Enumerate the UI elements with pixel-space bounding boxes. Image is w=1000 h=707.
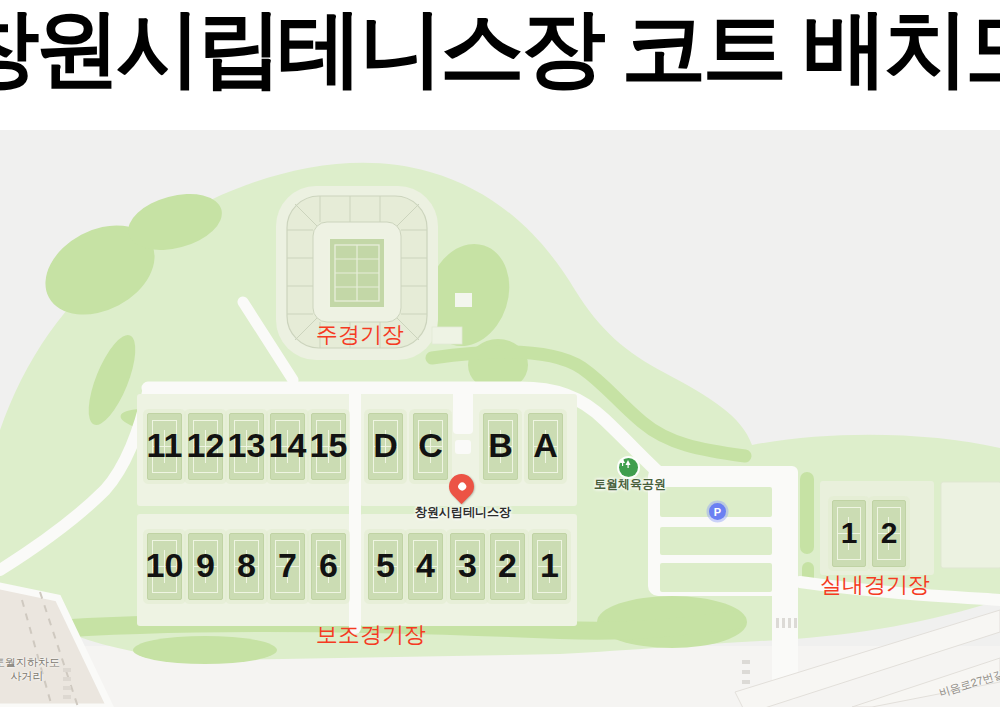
court-3: 3 xyxy=(450,533,485,600)
tree-glyph xyxy=(619,458,632,469)
court-7: 7 xyxy=(270,533,305,600)
court-11: 11 xyxy=(147,413,182,480)
court-layout-map: 11 12 13 14 15 D C B A 10 xyxy=(0,130,1000,707)
court-C: C xyxy=(413,413,448,480)
court-13: 13 xyxy=(229,413,264,480)
title-bar: 창원시립테니스장 코트 배치도 xyxy=(0,0,1000,130)
court-12: 12 xyxy=(188,413,223,480)
page-title: 창원시립테니스장 코트 배치도 xyxy=(0,0,1000,95)
court-15: 15 xyxy=(311,413,346,480)
main-stadium-label: 주경기장 xyxy=(305,320,415,350)
court-label: 7 xyxy=(278,545,297,584)
court-label: A xyxy=(533,425,558,464)
court-1: 1 xyxy=(532,533,567,600)
court-label: 5 xyxy=(376,545,395,584)
indoor-court-1: 1 xyxy=(832,500,866,567)
court-label: C xyxy=(418,425,443,464)
court-label: 10 xyxy=(146,545,184,584)
court-label: 1 xyxy=(540,545,559,584)
court-B: B xyxy=(483,413,518,480)
indoor-court-2: 2 xyxy=(872,500,906,567)
court-A: A xyxy=(528,413,563,480)
court-label: 11 xyxy=(147,425,183,464)
court-8: 8 xyxy=(229,533,264,600)
court-label: 13 xyxy=(228,425,266,464)
pin-label: 창원시립테니스장 xyxy=(413,504,513,521)
court-label: 6 xyxy=(319,545,338,584)
court-label: B xyxy=(488,425,513,464)
court-D: D xyxy=(368,413,403,480)
court-label: 12 xyxy=(187,425,225,464)
court-14: 14 xyxy=(270,413,305,480)
intersection-label: 토월지하차도 사거리 xyxy=(0,656,72,684)
court-6: 6 xyxy=(311,533,346,600)
court-label: 15 xyxy=(310,425,348,464)
court-label: 1 xyxy=(841,515,858,549)
court-2: 2 xyxy=(490,533,525,600)
parking-icon: P xyxy=(709,503,726,520)
indoor-stadium-label: 실내경기장 xyxy=(820,570,926,600)
intersection-label-line2: 사거리 xyxy=(11,670,44,682)
aux-stadium-label: 보조경기장 xyxy=(308,620,434,650)
court-label: 4 xyxy=(416,545,435,584)
court-4: 4 xyxy=(408,533,443,600)
court-label: 8 xyxy=(237,545,256,584)
page: 창원시립테니스장 코트 배치도 xyxy=(0,0,1000,707)
intersection-label-line1: 토월지하차도 xyxy=(0,656,60,668)
court-label: 2 xyxy=(881,515,898,549)
court-label: 14 xyxy=(269,425,307,464)
park-icon xyxy=(619,458,638,477)
park-poi-label: 토월체육공원 xyxy=(592,476,668,493)
court-label: 2 xyxy=(498,545,517,584)
court-5: 5 xyxy=(368,533,403,600)
court-label: 9 xyxy=(196,545,215,584)
court-9: 9 xyxy=(188,533,223,600)
court-label: D xyxy=(373,425,398,464)
court-10: 10 xyxy=(147,533,182,600)
court-label: 3 xyxy=(458,545,477,584)
